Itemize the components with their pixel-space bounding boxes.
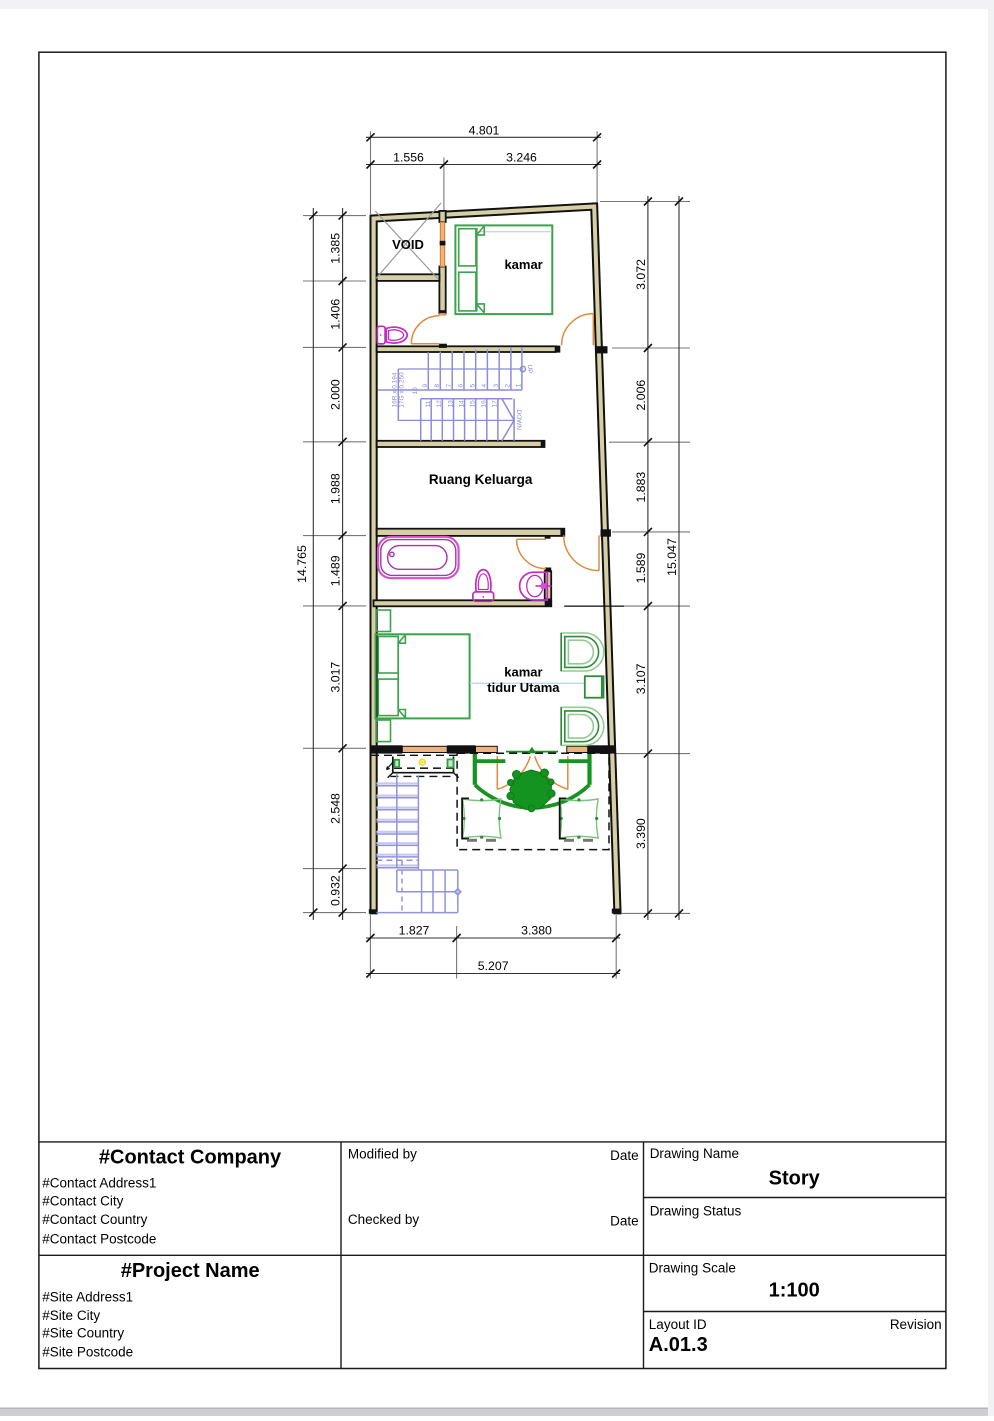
svg-text:#Site Address1: #Site Address1 xyxy=(42,1290,133,1305)
svg-text:1.556: 1.556 xyxy=(393,151,424,165)
svg-text:15: 15 xyxy=(470,400,477,408)
svg-text:kamar: kamar xyxy=(504,257,542,272)
svg-text:17G x 0.250: 17G x 0.250 xyxy=(399,372,406,408)
svg-text:11: 11 xyxy=(425,400,432,407)
svg-text:14: 14 xyxy=(458,400,465,408)
svg-text:#Site Postcode: #Site Postcode xyxy=(42,1344,133,1359)
svg-text:Story: Story xyxy=(769,1167,821,1189)
svg-text:Drawing Name: Drawing Name xyxy=(650,1146,739,1161)
svg-text:14.765: 14.765 xyxy=(295,545,309,583)
svg-text:3.072: 3.072 xyxy=(634,259,648,290)
svg-text:Date: Date xyxy=(610,1148,639,1163)
svg-text:Date: Date xyxy=(610,1214,639,1229)
svg-text:2.000: 2.000 xyxy=(329,379,343,410)
svg-text:#Site City: #Site City xyxy=(42,1308,100,1323)
svg-text:1.385: 1.385 xyxy=(329,233,343,264)
svg-text:Ruang Keluarga: Ruang Keluarga xyxy=(429,472,533,487)
svg-text:1:100: 1:100 xyxy=(769,1279,820,1301)
svg-text:3.107: 3.107 xyxy=(634,663,648,694)
svg-text:13: 13 xyxy=(447,400,454,408)
svg-text:3.246: 3.246 xyxy=(506,151,537,165)
svg-text:1.589: 1.589 xyxy=(634,552,648,583)
svg-text:1.988: 1.988 xyxy=(329,473,343,504)
svg-text:1: 1 xyxy=(516,384,523,388)
svg-text:9: 9 xyxy=(422,384,429,388)
svg-text:3.390: 3.390 xyxy=(634,818,648,849)
svg-text:0.932: 0.932 xyxy=(329,875,343,906)
svg-text:16: 16 xyxy=(481,400,488,408)
svg-text:2.548: 2.548 xyxy=(329,793,343,824)
svg-text:10: 10 xyxy=(412,387,419,395)
svg-text:1.827: 1.827 xyxy=(399,924,430,938)
svg-text:Drawing Status: Drawing Status xyxy=(650,1204,742,1219)
svg-text:8: 8 xyxy=(434,384,441,388)
svg-text:tidur Utama: tidur Utama xyxy=(487,680,560,695)
svg-text:1.406: 1.406 xyxy=(329,299,343,330)
svg-text:15.047: 15.047 xyxy=(665,538,679,576)
svg-text:3.380: 3.380 xyxy=(521,924,552,938)
svg-text:#Contact Country: #Contact Country xyxy=(42,1212,147,1227)
svg-text:#Contact Address1: #Contact Address1 xyxy=(42,1175,156,1190)
svg-text:16R x 0.194: 16R x 0.194 xyxy=(392,372,399,407)
svg-text:12: 12 xyxy=(436,400,443,408)
svg-text:DOWN: DOWN xyxy=(515,410,522,431)
svg-text:A.01.3: A.01.3 xyxy=(649,1334,708,1356)
svg-text:#Site Country: #Site Country xyxy=(42,1326,124,1341)
svg-text:Layout ID: Layout ID xyxy=(649,1317,707,1332)
svg-text:#Contact City: #Contact City xyxy=(42,1194,123,1209)
svg-text:3.017: 3.017 xyxy=(329,662,343,693)
svg-text:1.883: 1.883 xyxy=(634,472,648,503)
svg-text:UP: UP xyxy=(526,365,533,374)
svg-text:kamar: kamar xyxy=(504,664,542,679)
svg-text:6: 6 xyxy=(458,384,465,388)
svg-text:#Project Name: #Project Name xyxy=(121,1260,260,1282)
svg-text:7: 7 xyxy=(446,384,453,388)
svg-text:3: 3 xyxy=(493,384,500,388)
svg-text:#Contact Company: #Contact Company xyxy=(99,1147,282,1169)
svg-text:1.489: 1.489 xyxy=(329,555,343,586)
svg-text:Checked by: Checked by xyxy=(348,1212,420,1227)
svg-text:5: 5 xyxy=(469,384,476,388)
svg-text:17: 17 xyxy=(492,400,499,408)
svg-text:Drawing Scale: Drawing Scale xyxy=(649,1260,736,1275)
svg-text:Modified by: Modified by xyxy=(348,1147,417,1162)
svg-text:2.006: 2.006 xyxy=(634,380,648,411)
svg-text:2: 2 xyxy=(505,384,512,388)
svg-text:VOID: VOID xyxy=(392,237,424,252)
svg-text:5.207: 5.207 xyxy=(478,959,509,973)
svg-text:4: 4 xyxy=(481,384,488,388)
svg-text:Revision: Revision xyxy=(890,1317,942,1332)
svg-text:4.801: 4.801 xyxy=(469,124,500,138)
svg-text:#Contact Postcode: #Contact Postcode xyxy=(42,1232,156,1247)
